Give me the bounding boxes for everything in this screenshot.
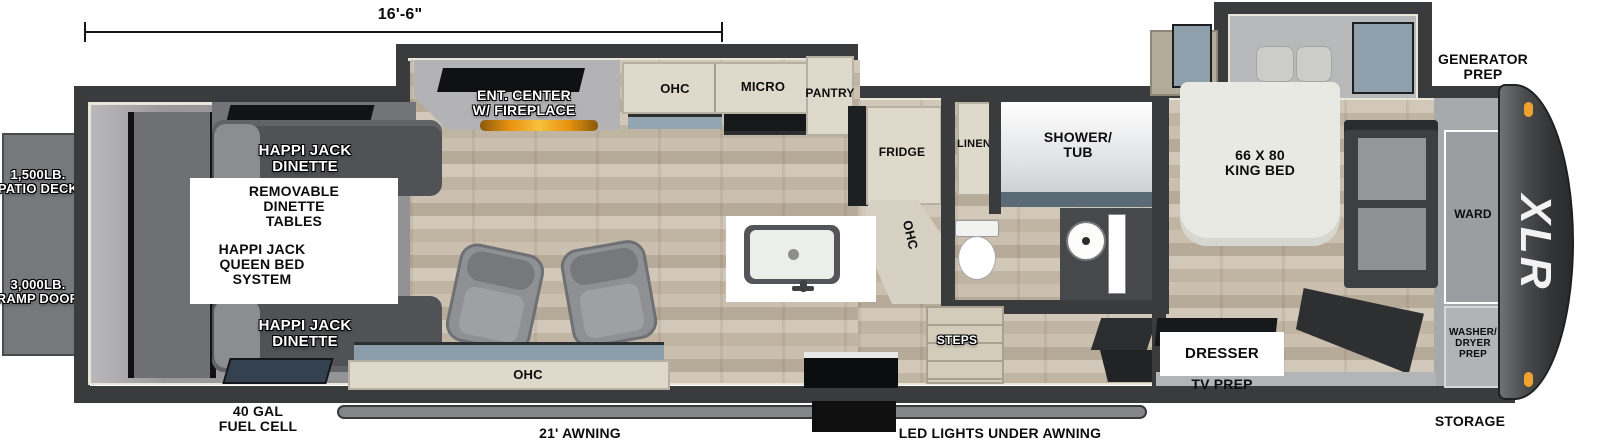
fuel-cell-label: 40 GAL FUEL CELL	[196, 404, 320, 434]
generator-prep-label: GENERATOR PREP	[1403, 52, 1563, 82]
dimension-line	[84, 31, 723, 33]
sink-drain	[788, 249, 799, 260]
storage-label: STORAGE	[1400, 414, 1540, 429]
dimension-tick-left	[84, 22, 86, 42]
pantry-label: PANTRY	[796, 87, 864, 100]
xlr-brand-label: XLR	[1512, 163, 1558, 323]
marker-light-bottom	[1524, 372, 1533, 387]
sink-faucet-base	[800, 280, 807, 292]
ohc-top-label: OHC	[640, 82, 710, 96]
bath-divider-wall	[989, 102, 1001, 214]
recliner-left-seat	[457, 285, 526, 344]
toilet-tank	[955, 220, 999, 237]
recliner-right-back	[568, 246, 640, 287]
recliner-right-seat	[578, 282, 645, 340]
ohc-bottom-label: OHC	[498, 368, 558, 382]
fireplace-glow	[480, 120, 598, 131]
removable-tables-label: REMOVABLE DINETTE TABLES	[208, 184, 380, 229]
shower-tub-label: SHOWER/ TUB	[1011, 130, 1145, 160]
bed-pillow-left	[1256, 46, 1294, 82]
steps-label: STEPS	[922, 334, 992, 347]
cooktop	[724, 114, 816, 135]
dimension-tick-right	[721, 22, 723, 42]
led-lights-label: LED LIGHTS UNDER AWNING	[875, 426, 1125, 441]
hull-step-wall	[396, 44, 410, 104]
bunk-panel-lower	[1358, 208, 1426, 270]
king-bed-label: 66 X 80 KING BED	[1190, 148, 1330, 178]
wing-window	[1172, 24, 1212, 88]
bed-pillow-right	[1296, 46, 1332, 82]
awning-bar	[337, 405, 1147, 419]
bedroom-steps-1	[1091, 318, 1157, 350]
awning-label: 21' AWNING	[500, 426, 660, 441]
vanity-drain	[1082, 237, 1090, 245]
ent-center-label: ENT. CENTER W/ FIREPLACE	[448, 88, 600, 118]
toilet-bowl	[958, 236, 996, 280]
dresser-label: DRESSER	[1160, 346, 1284, 362]
overhead-cabinet-divider	[714, 64, 716, 112]
hull-bottom-wall	[74, 386, 1515, 403]
dinette-top-label: HAPPI JACK DINETTE	[224, 143, 386, 175]
queen-bed-system-label: HAPPI JACK QUEEN BED SYSTEM	[192, 242, 332, 287]
dimension-label: 16'-6"	[300, 6, 500, 23]
marker-light-top	[1524, 102, 1533, 117]
fridge-label: FRIDGE	[862, 146, 942, 159]
micro-label: MICRO	[718, 80, 808, 94]
shower-ledge	[1001, 192, 1155, 207]
bunk-panel-upper	[1358, 138, 1426, 200]
tv-prep-label: TV PREP	[1167, 377, 1277, 392]
entry-door	[804, 358, 898, 388]
vanity-mirror-door	[1108, 214, 1126, 294]
floorplan-canvas: 16'-6" 1,500LB. PATIO DECK 3,000LB. RAMP…	[0, 0, 1600, 446]
rear-bottom-window	[222, 358, 333, 384]
undercab-window	[628, 114, 722, 129]
recliner-right	[558, 237, 660, 350]
